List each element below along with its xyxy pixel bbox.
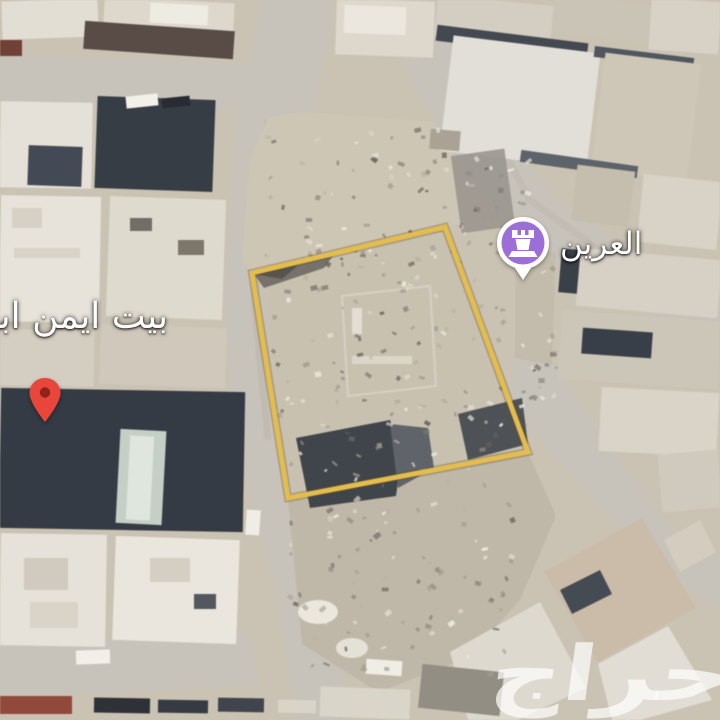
poi-marker[interactable] [494,214,552,290]
watermark-logo: حراج [485,629,720,718]
marker-tail [511,262,535,280]
place-label-neighbor: بيت ايمن ابو [0,296,168,337]
map-viewport[interactable]: بيت ايمن ابو العرين حراج [0,0,720,720]
poi-label: العرين [560,226,642,262]
haze-overlay [0,0,720,720]
pin-body [30,378,61,422]
satellite-imagery [0,0,720,720]
pin-dot [40,387,50,397]
destination-pin[interactable] [26,376,64,426]
